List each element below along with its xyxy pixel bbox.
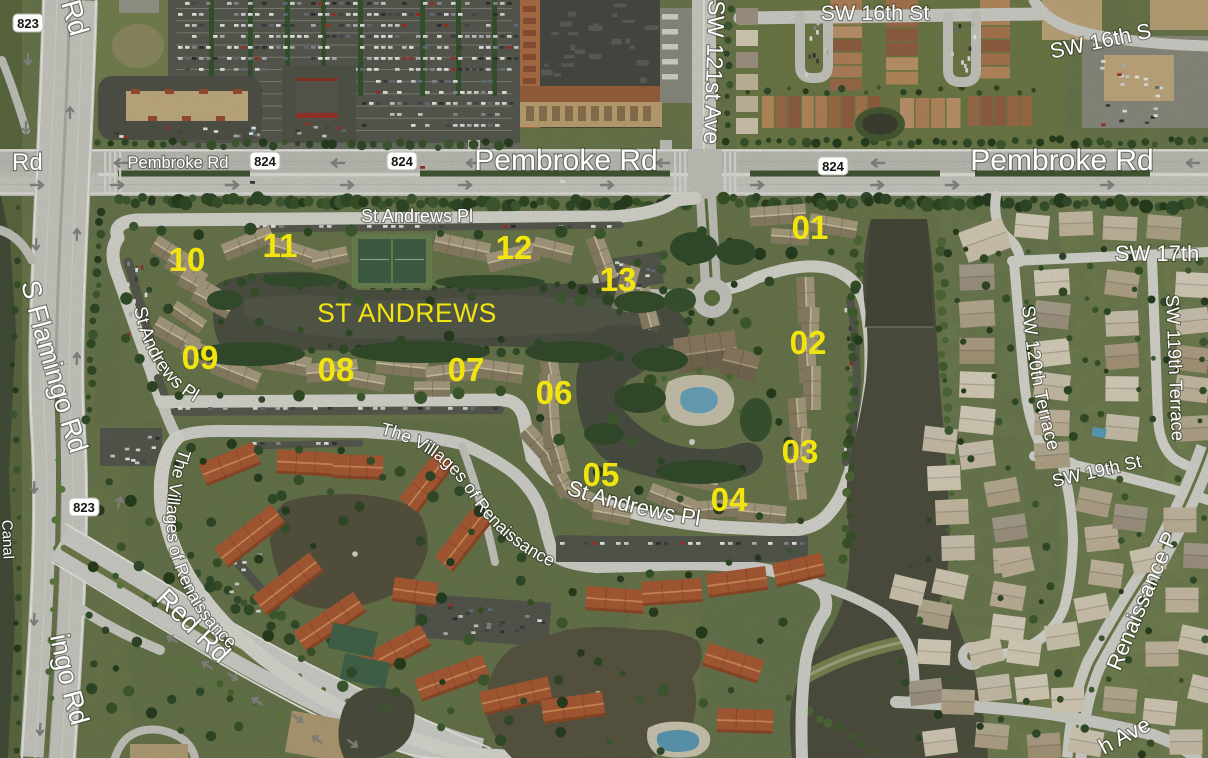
svg-text:Pembroke Rd: Pembroke Rd xyxy=(970,144,1153,177)
svg-text:St Andrews Pl: St Andrews Pl xyxy=(361,206,473,226)
svg-text:Pembroke Rd: Pembroke Rd xyxy=(128,154,229,172)
svg-text:10: 10 xyxy=(169,241,206,278)
svg-text:824: 824 xyxy=(822,159,844,174)
svg-text:08: 08 xyxy=(318,351,355,388)
svg-text:04: 04 xyxy=(711,481,748,518)
svg-text:07: 07 xyxy=(448,351,485,388)
svg-text:09: 09 xyxy=(182,339,219,376)
svg-text:06: 06 xyxy=(536,374,573,411)
svg-text:823: 823 xyxy=(17,16,39,31)
svg-text:SW 121st Ave: SW 121st Ave xyxy=(699,0,730,145)
svg-text:SW 17th: SW 17th xyxy=(1115,241,1199,266)
svg-text:Rd: Rd xyxy=(12,149,43,176)
svg-text:SW 16th St: SW 16th St xyxy=(821,1,930,25)
svg-text:13: 13 xyxy=(600,261,637,298)
svg-text:824: 824 xyxy=(254,154,276,169)
svg-text:Canal: Canal xyxy=(0,519,17,559)
svg-text:823: 823 xyxy=(73,500,95,515)
svg-text:03: 03 xyxy=(782,433,819,470)
svg-text:Pembroke Rd: Pembroke Rd xyxy=(474,144,657,177)
svg-text:824: 824 xyxy=(391,154,413,169)
svg-text:01: 01 xyxy=(792,209,829,246)
svg-text:02: 02 xyxy=(790,324,827,361)
svg-text:ST ANDREWS: ST ANDREWS xyxy=(317,298,497,328)
svg-text:11: 11 xyxy=(263,227,298,264)
svg-text:12: 12 xyxy=(496,229,533,266)
svg-text:05: 05 xyxy=(583,456,620,493)
